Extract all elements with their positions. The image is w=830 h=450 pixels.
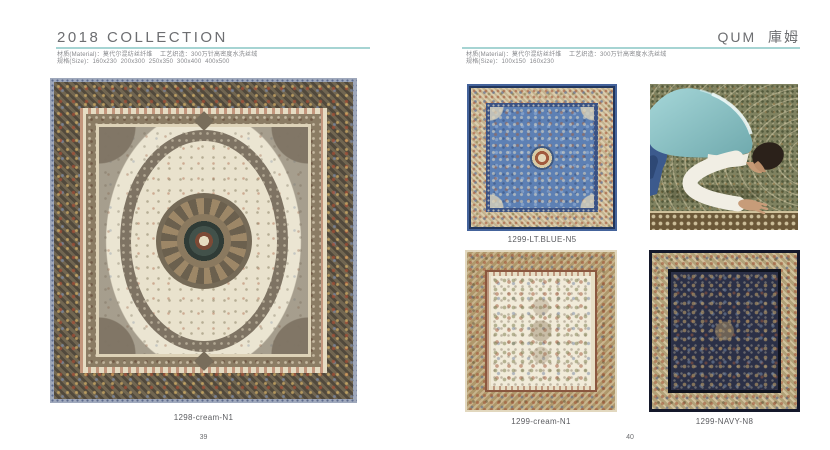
- vest-back: [650, 88, 752, 157]
- catalog-spread: 2018 COLLECTION 材质(Material)：莫代尔混纺丝纤维 工艺…: [0, 0, 830, 450]
- product-caption-1299-lt-blue-n5: 1299-LT.BLUE-N5: [467, 235, 617, 244]
- left-page-title: 2018 COLLECTION: [57, 29, 228, 46]
- page-number-left: 39: [50, 434, 357, 441]
- left-material-line: 材质(Material)：莫代尔混纺丝纤维 工艺织造：300万针高密度水洗丝绒: [57, 52, 257, 59]
- left-sizes-line: 规格(Size)：160x230 200x300 250x350 300x400…: [57, 59, 230, 66]
- right-sizes-line: 规格(Size)：100x150 160x230: [466, 59, 554, 66]
- shirt-sleeve: [690, 158, 738, 204]
- page-number-right: 40: [455, 434, 805, 441]
- product-image-1299-lt-blue-n5: [467, 84, 617, 231]
- product-image-1299-cream-n1: [465, 250, 617, 412]
- carpet-field: [671, 272, 778, 390]
- prayer-photo: [650, 84, 798, 230]
- carpet-center-rosette: [530, 146, 554, 170]
- medallion-core: [177, 214, 231, 268]
- right-page-title-zh: 庫姆: [768, 29, 800, 45]
- right-page-title-en: QUM: [718, 29, 757, 45]
- right-page-title: QUM 庫姆: [460, 27, 800, 47]
- product-caption-1298-cream-n1: 1298-cream-N1: [50, 413, 357, 422]
- product-caption-1299-cream-n1: 1299-cream-N1: [465, 417, 617, 426]
- left-accent-rule: [56, 47, 370, 49]
- product-image-1298-cream-n1: [50, 78, 357, 403]
- product-caption-1299-navy-n8: 1299-NAVY-N8: [649, 417, 800, 426]
- product-image-1299-navy-n8: [649, 250, 800, 412]
- praying-man-illustration: [650, 84, 798, 230]
- right-material-line: 材质(Material)：莫代尔混纺丝纤维 工艺织造：300万针高密度水洗丝绒: [466, 52, 666, 59]
- carpet-field: [491, 276, 591, 386]
- right-accent-rule: [462, 47, 800, 49]
